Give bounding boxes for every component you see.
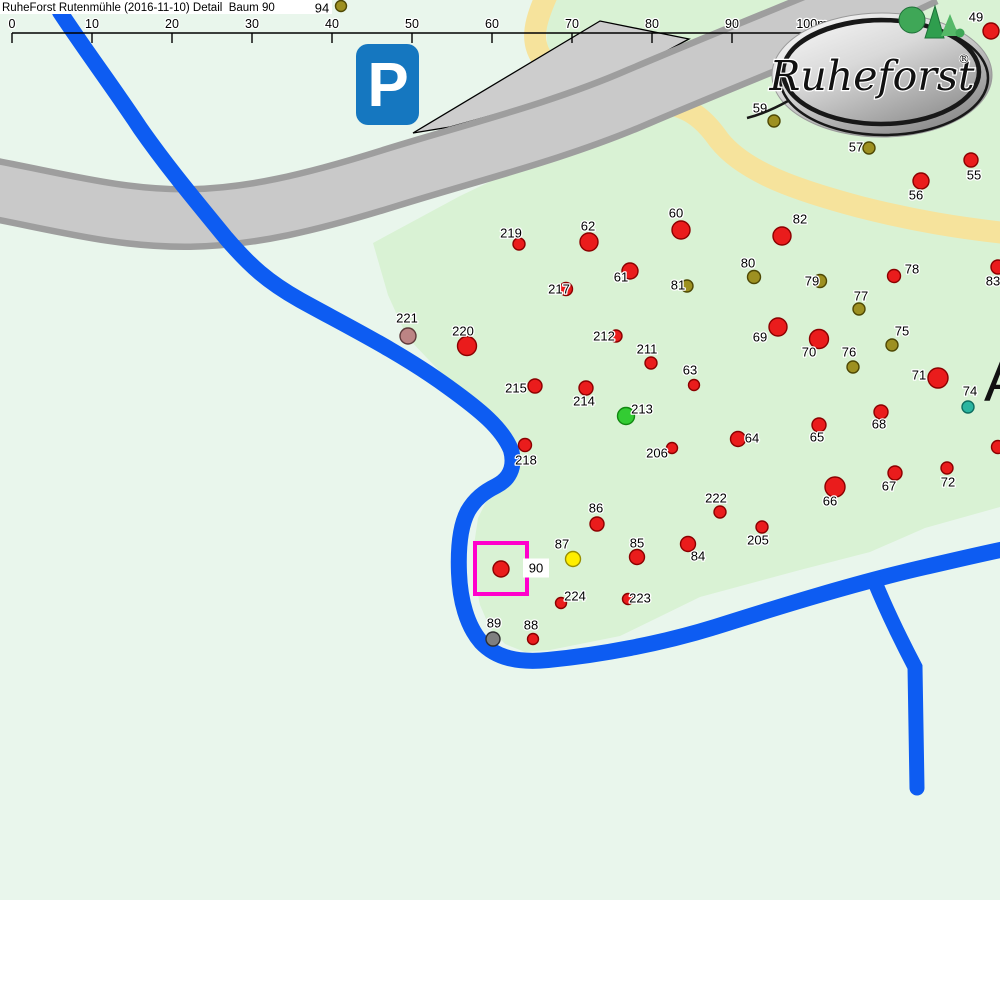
tree-label-78: 78 (905, 262, 919, 277)
tree-label-49: 49 (969, 10, 983, 25)
tree-dot-82[interactable] (773, 227, 791, 245)
tree-label-219: 219 (500, 226, 522, 241)
scale-tick-label: 60 (485, 17, 499, 31)
parking-sign-glyph: P (367, 51, 408, 120)
tree-dot-90[interactable] (493, 561, 509, 577)
scale-tick-label: 20 (165, 17, 179, 31)
tree-label-80: 80 (741, 256, 755, 271)
tree-dot-60[interactable] (672, 221, 690, 239)
tree-dot-215[interactable] (528, 379, 542, 393)
tree-label-88: 88 (524, 618, 538, 633)
tree-label-75: 75 (895, 324, 909, 339)
tree-dot-89[interactable] (486, 632, 500, 646)
tree-dot-63[interactable] (689, 380, 700, 391)
scale-tick-label: 10 (85, 17, 99, 31)
tree-dot-211[interactable] (645, 357, 657, 369)
tree-dot-206[interactable] (667, 443, 678, 454)
tree-label-74: 74 (963, 384, 977, 399)
tree-label-83: 83 (986, 274, 1000, 289)
tree-label-223: 223 (629, 591, 651, 606)
tree-dot-87[interactable] (566, 552, 581, 567)
tree-dot-55[interactable] (964, 153, 978, 167)
area-label: A (984, 349, 1000, 414)
tree-label-94: 94 (315, 1, 329, 16)
tree-label-218: 218 (515, 453, 537, 468)
map-stage: A RuheForst Rutenmühle (2016-11-10) Deta… (0, 0, 1000, 1000)
tree-label-86: 86 (589, 501, 603, 516)
tree-label-68: 68 (872, 417, 886, 432)
tree-label-89: 89 (487, 616, 501, 631)
tree-label-224: 224 (564, 589, 586, 604)
tree-label-85: 85 (630, 536, 644, 551)
tree-dot-57[interactable] (863, 142, 875, 154)
tree-dot-78[interactable] (888, 270, 901, 283)
tree-label-56: 56 (909, 188, 923, 203)
bottom-margin (0, 900, 1000, 1000)
map-canvas: A RuheForst Rutenmühle (2016-11-10) Deta… (0, 0, 1000, 1000)
tree-label-213: 213 (631, 402, 653, 417)
tree-dot-72[interactable] (941, 462, 953, 474)
tree-label-71: 71 (912, 368, 926, 383)
tree-dot-76[interactable] (847, 361, 859, 373)
tree-label-69: 69 (753, 330, 767, 345)
tree-dot-69[interactable] (769, 318, 787, 336)
tree-label-60: 60 (669, 206, 683, 221)
scale-tick-label: 40 (325, 17, 339, 31)
tree-label-84: 84 (691, 549, 705, 564)
tree-label-215: 215 (505, 381, 527, 396)
tree-dot-62[interactable] (580, 233, 598, 251)
scale-tick-label: 80 (645, 17, 659, 31)
tree-dot-86[interactable] (590, 517, 604, 531)
tree-label-82: 82 (793, 212, 807, 227)
map-title: RuheForst Rutenmühle (2016-11-10) Detail… (2, 2, 275, 14)
tree-label-62: 62 (581, 219, 595, 234)
tree-dot-205[interactable] (756, 521, 768, 533)
tree-label-212: 212 (593, 329, 615, 344)
tree-dot-85[interactable] (630, 550, 645, 565)
tree-dot-88[interactable] (528, 634, 539, 645)
tree-label-87: 87 (555, 537, 569, 552)
tree-dot-75[interactable] (886, 339, 898, 351)
tree-label-55: 55 (967, 168, 981, 183)
tree-dot-222[interactable] (714, 506, 726, 518)
tree-label-211: 211 (637, 342, 658, 357)
tree-label-222: 222 (705, 491, 727, 506)
parking-sign: P (356, 44, 419, 125)
tree-label-70: 70 (802, 345, 816, 360)
tree-dot-74[interactable] (962, 401, 974, 413)
tree-label-66: 66 (823, 494, 837, 509)
logo-registered-mark: ® (958, 52, 970, 66)
tree-dot-80[interactable] (748, 271, 761, 284)
tree-label-205: 205 (747, 533, 769, 548)
tree-label-72: 72 (941, 475, 955, 490)
tree-dot-94[interactable] (336, 1, 347, 12)
tree-dot-218[interactable] (519, 439, 532, 452)
tree-label-65: 65 (810, 430, 824, 445)
tree-dot-220[interactable] (458, 337, 477, 356)
scale-tick-label: 50 (405, 17, 419, 31)
tree-dot-59[interactable] (768, 115, 780, 127)
tree-dot-unlabeled[interactable] (992, 441, 1000, 454)
tree-label-77: 77 (854, 289, 868, 304)
tree-dot-49[interactable] (983, 23, 999, 39)
tree-label-76: 76 (842, 345, 856, 360)
tree-label-220: 220 (452, 324, 474, 339)
tree-label-61: 61 (614, 270, 628, 285)
tree-label-57: 57 (849, 140, 863, 155)
scale-tick-label: 90 (725, 17, 739, 31)
scale-tick-label: 70 (565, 17, 579, 31)
scale-tick-label: 0 (9, 17, 16, 31)
tree-label-67: 67 (882, 479, 896, 494)
tree-label-81: 81 (671, 278, 685, 293)
tree-dot-77[interactable] (853, 303, 865, 315)
tree-label-214: 214 (573, 394, 595, 409)
tree-dot-83[interactable] (991, 260, 1000, 274)
tree-dot-64[interactable] (731, 432, 746, 447)
tree-label-79: 79 (805, 274, 819, 289)
tree-dot-221[interactable] (400, 328, 416, 344)
tree-dot-71[interactable] (928, 368, 948, 388)
tree-label-206: 206 (646, 446, 668, 461)
scale-tick-label: 30 (245, 17, 259, 31)
tree-label-90: 90 (529, 561, 543, 576)
tree-label-64: 64 (745, 431, 759, 446)
logo-wordmark: Ruheforst (769, 52, 975, 100)
tree-label-63: 63 (683, 363, 697, 378)
tree-label-217: 217 (548, 282, 570, 297)
tree-label-221: 221 (396, 311, 418, 326)
